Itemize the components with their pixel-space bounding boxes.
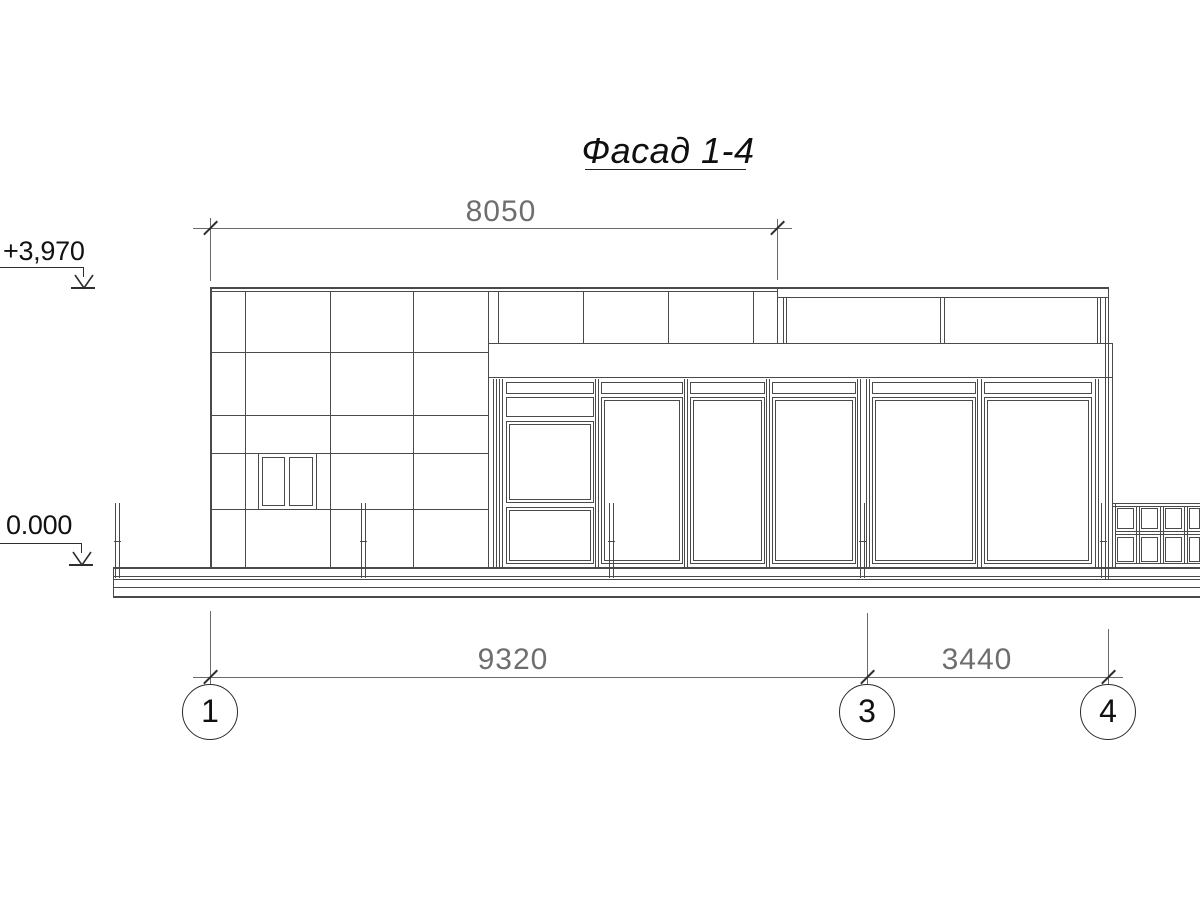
fence-pane bbox=[1165, 508, 1182, 529]
upper-strip-column bbox=[583, 291, 584, 344]
parapet-bottom-line bbox=[777, 297, 1108, 298]
upper-strip-column bbox=[668, 291, 669, 344]
building-right-edge bbox=[1108, 287, 1109, 580]
axis-bubble-4: 4 bbox=[1080, 684, 1136, 740]
storefront-mullion bbox=[499, 379, 500, 567]
fence-frame bbox=[1112, 503, 1113, 568]
glazing-pane-inner bbox=[509, 510, 591, 561]
base-line bbox=[113, 576, 1200, 577]
storefront-mullion bbox=[1095, 379, 1096, 567]
fence-pane bbox=[1141, 508, 1158, 529]
fence-pane bbox=[1189, 508, 1200, 529]
railing-post-tick bbox=[114, 541, 121, 542]
roof-edge-line bbox=[210, 287, 1108, 289]
transom-pane bbox=[984, 382, 1092, 394]
fence-frame bbox=[1115, 503, 1116, 568]
railing-post-tick bbox=[608, 541, 615, 542]
wall-grid-row bbox=[210, 352, 489, 353]
fascia-top-line bbox=[488, 343, 1112, 344]
transom-pane bbox=[690, 382, 765, 394]
axis-label: 4 bbox=[1099, 693, 1117, 729]
base-line bbox=[113, 579, 1200, 580]
glazing-pane-inner bbox=[693, 400, 762, 561]
storefront-mullion bbox=[977, 379, 978, 567]
transom-pane bbox=[772, 382, 856, 394]
storefront-mullion bbox=[769, 379, 770, 567]
clerestory-mullion bbox=[783, 297, 784, 344]
glazing-pane-inner bbox=[775, 400, 853, 561]
axis-label: 1 bbox=[201, 693, 219, 729]
base-top-line bbox=[113, 567, 1200, 569]
storefront-mullion bbox=[857, 379, 858, 567]
storefront-mullion bbox=[595, 379, 596, 567]
storefront-mullion bbox=[598, 379, 599, 567]
wall-window-pane bbox=[262, 457, 285, 506]
storefront-mullion bbox=[869, 379, 870, 567]
clerestory-mullion bbox=[940, 297, 941, 344]
storefront-mullion bbox=[687, 379, 688, 567]
fence-divider bbox=[1187, 507, 1188, 564]
clerestory-mullion bbox=[944, 297, 945, 344]
base-line bbox=[113, 587, 1200, 588]
wall-grid-column bbox=[245, 291, 246, 568]
axis-label: 3 bbox=[858, 693, 876, 729]
dimension-line-top bbox=[193, 228, 792, 229]
wall-grid-column bbox=[413, 291, 414, 568]
storefront-mullion bbox=[1098, 379, 1099, 567]
clerestory-mullion bbox=[1097, 297, 1098, 344]
clerestory-mullion bbox=[1100, 297, 1101, 344]
glazing-pane-inner bbox=[509, 424, 591, 500]
fence-pane bbox=[1141, 537, 1158, 562]
glazing-pane-inner bbox=[604, 400, 680, 561]
axis-bubble-1: 1 bbox=[182, 684, 238, 740]
fence-pane bbox=[1189, 537, 1200, 562]
railing-post-tick bbox=[859, 541, 866, 542]
wall-grid-row bbox=[210, 509, 489, 510]
fence-divider bbox=[1139, 507, 1140, 564]
wall-window-pane bbox=[289, 457, 313, 506]
wall-grid-row bbox=[210, 453, 489, 454]
wall-grid-column bbox=[330, 291, 331, 568]
fence-pane bbox=[1117, 508, 1134, 529]
storefront-mullion bbox=[766, 379, 767, 567]
glazing-pane-inner bbox=[875, 400, 973, 561]
facade-drawing-sheet: Фасад 1-4 8050 9320 3440 +3,970 0.000 1 … bbox=[0, 0, 1200, 900]
axis-bubble-3: 3 bbox=[839, 684, 895, 740]
building-left-edge bbox=[210, 287, 212, 568]
storefront-mullion bbox=[493, 379, 494, 567]
axis-extension-line bbox=[210, 611, 211, 684]
base-left-edge bbox=[113, 567, 114, 598]
railing-post-tick bbox=[1100, 541, 1107, 542]
fence-divider bbox=[1160, 507, 1161, 564]
storefront-mullion bbox=[502, 379, 503, 567]
wall-block-right-edge bbox=[488, 291, 489, 568]
clerestory-mullion bbox=[786, 297, 787, 344]
storefront-mullion bbox=[496, 379, 497, 567]
fence-divider bbox=[1163, 507, 1164, 564]
upper-strip-right-edge bbox=[777, 287, 778, 344]
fence-divider bbox=[1184, 507, 1185, 564]
fence-rail bbox=[1112, 503, 1200, 504]
fascia-bottom-line bbox=[488, 377, 1112, 378]
fence-divider bbox=[1136, 507, 1137, 564]
upper-strip-column bbox=[753, 291, 754, 344]
upper-strip-column bbox=[498, 291, 499, 344]
wall-grid-row bbox=[210, 415, 489, 416]
door-top-panel bbox=[506, 397, 594, 417]
storefront-mullion bbox=[866, 379, 867, 567]
storefront-mullion bbox=[981, 379, 982, 567]
roof-inner-line bbox=[210, 291, 777, 292]
storefront-mullion bbox=[684, 379, 685, 567]
fence-pane bbox=[1165, 537, 1182, 562]
transom-pane bbox=[601, 382, 683, 394]
base-bottom-line bbox=[113, 596, 1200, 598]
fence-pane bbox=[1117, 537, 1134, 562]
glazing-pane-inner bbox=[987, 400, 1089, 561]
dimension-line-bottom bbox=[193, 677, 1123, 678]
transom-pane bbox=[506, 382, 594, 394]
transom-pane bbox=[872, 382, 976, 394]
linework-layer bbox=[0, 0, 1200, 900]
railing-post-tick bbox=[360, 541, 367, 542]
